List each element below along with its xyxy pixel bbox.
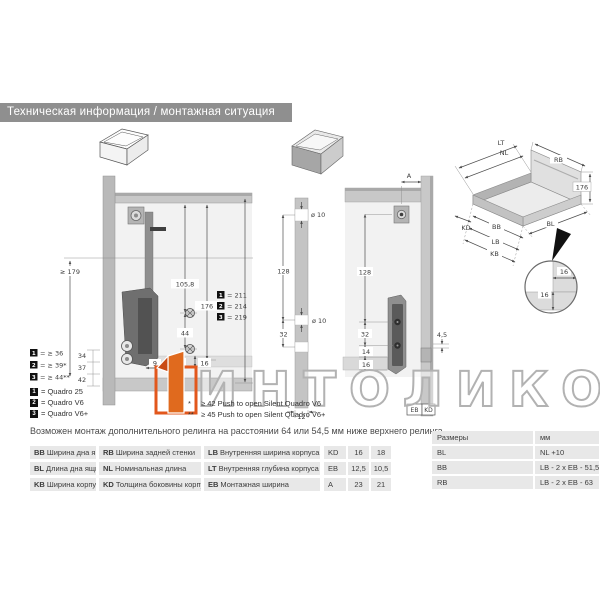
dim-bb-label: BB [492,223,501,231]
size-formula-table: Размеры мм BL NL +10 BB LB - 2 x EB - 51… [432,431,599,489]
glossary-text: Толщина боковины корпуса [116,480,201,489]
glossary-abbr: KB [34,480,45,489]
variant-badge: 3 [219,315,223,321]
drawer-open-icon [100,129,148,165]
mini-cell: 12,5 [348,462,369,475]
mini-cell: 16 [348,446,369,459]
dim-bl-label: BL [546,220,554,228]
variant-badge: 1 [219,293,223,299]
glossary-text: Монтажная ширина [220,480,289,489]
dim-rb-label: RB [554,156,563,164]
mini-cell: A [324,478,346,491]
variant-2-badge: 2 [30,399,38,407]
glossary-cell: LBВнутренняя ширина корпуса [204,446,320,459]
dim-32-panel-label: 32 [361,331,369,339]
variant-badge: 1 [32,351,36,357]
dim-lt-label: LT [498,139,505,147]
quadro-legend-label: = Quadro V6 [41,398,84,407]
glossary-abbr: BB [34,448,45,457]
footnote-text: ≥ 42 Push to open Silent Quadro V6 [201,399,321,408]
glossary-cell: BLДлина дна ящика [30,462,96,475]
glossary-text: Внутренняя глубина корпуса [219,464,319,473]
dim-128-strip-label: 128 [277,268,289,276]
variant-1-badge: 1 [30,388,38,396]
quadro-legend-item: 2 = Quadro V6 [30,397,88,408]
glossary-text: Ширина корпуса [47,480,96,489]
variant-value: = ≥ 44** [40,374,71,382]
variant-value: = 219 [227,314,247,322]
dim-dia10-mid-label: ø 10 [312,317,326,325]
variant-badge: 3 [32,375,36,381]
isometric-drawer [463,150,591,266]
glossary-text: Ширина дна ящика [47,448,96,457]
adjustment-pin [150,227,166,231]
glossary-abbr: BL [34,464,44,473]
variant-badge: 2 [219,304,223,310]
glossary-abbr: KD [103,480,114,489]
variant-value: = 214 [227,303,247,311]
footnote: * ≥ 42 Push to open Silent Quadro V6 [188,398,325,409]
glossary-cell: EBМонтажная ширина [204,478,320,491]
mini-cell: 10,5 [371,462,391,475]
dim-44-label: 44 [181,330,189,338]
right-isometric-drawing: LT NL RB 176 KD BB BL LB [445,120,595,350]
size-formula: NL +10 [535,446,599,459]
variant-value: = ≥ 36 [40,350,63,358]
quadro-legend-item: 1 = Quadro 25 [30,386,88,397]
dim-nl-label: NL [500,149,509,157]
glossary-cell: LTВнутренняя глубина корпуса [204,462,320,475]
dim-a-label: A [407,172,412,180]
front-variant-legend: 1 = ≥ 36 34 2 = ≥ 39* 37 3 = ≥ 44** 42 [30,349,86,384]
glossary-cell: KBШирина корпуса [30,478,96,491]
mini-cell: 21 [371,478,391,491]
variant-3-badge: 3 [30,410,38,418]
footnote-text: ≥ 45 Push to open Silent Quadro V6+ [201,410,325,419]
size-formula: LB - 2 x EB - 63 [535,476,599,489]
glossary-abbr: EB [208,480,218,489]
dim-179-label: ≥ 179 [60,268,80,276]
glossary-cell: RBШирина задней стенки [99,446,201,459]
size-abbr: RB [432,476,533,489]
glossary-abbr: LB [208,448,218,457]
dim-176-label: 176 [201,303,213,311]
glossary-cell: BBШирина дна ящика [30,446,96,459]
footnote-mark: ** [188,410,201,419]
quadro-legend: 1 = Quadro 25 2 = Quadro V6 3 = Quadro V… [30,386,88,419]
glossary-text: Длина дна ящика [46,464,96,473]
glossary-abbr: NL [103,464,113,473]
size-abbr: BB [432,461,533,474]
dim-176-label: 176 [576,184,588,192]
mini-cell: 23 [348,478,369,491]
drill-hole [295,315,308,325]
dim-lb-label: LB [491,238,499,246]
variant-value: = 211 [227,292,247,300]
dim-kb-label: KB [490,250,499,258]
dim-37-label: 37 [78,364,86,372]
drawer-front-icon [292,130,343,174]
drill-hole [295,342,308,352]
dim-42-label: 42 [78,376,86,384]
variant-value: = ≥ 39* [40,362,67,370]
footnote: ** ≥ 45 Push to open Silent Quadro V6+ [188,409,325,420]
size-header-name: Размеры [432,431,533,444]
dim-128-panel-label: 128 [359,269,371,277]
mini-cell: KD [324,446,346,459]
variant-badge: 2 [32,363,36,369]
size-abbr: BL [432,446,533,459]
drill-hole [295,209,308,221]
corner-detail: 16 16 [525,228,578,313]
catalog-page: Техническая информация / монтажная ситуа… [0,0,600,600]
mini-cell: 18 [371,446,391,459]
detail-dim-16-h: 16 [560,268,568,276]
glossary-abbr: RB [103,448,114,457]
size-header-unit: мм [535,431,599,444]
detail-dim-16-v: 16 [540,291,548,299]
quadro-legend-item: 3 = Quadro V6+ [30,408,88,419]
glossary-abbr: LT [208,464,217,473]
panel-bracket [421,348,431,362]
glossary-cell: NLНоминальная длина [99,462,201,475]
size-formula: LB - 2 x EB - 51,5 [535,461,599,474]
glossary-text: Ширина задней стенки [116,448,195,457]
detail-pointer-wedge [552,228,571,261]
dim-32-strip-label: 32 [279,331,287,339]
dim-dia10-top-label: ø 10 [311,211,325,219]
abbreviation-glossary: BBШирина дна ящика RBШирина задней стенк… [30,446,320,491]
dim-34-label: 34 [78,352,86,360]
dim-105-8-label: 105,8 [176,281,195,289]
footnote-mark: * [188,399,201,408]
quadro-legend-label: = Quadro 25 [41,387,83,396]
quadro-legend-label: = Quadro V6+ [41,409,88,418]
mini-cell: EB [324,462,346,475]
kd-eb-a-table: KD 16 18 EB 12,5 10,5 A 23 21 [324,446,391,491]
glossary-cell: KDТолщина боковины корпуса [99,478,201,491]
glossary-text: Номинальная длина [115,464,186,473]
height-variant-legend: 1 = 211 2 = 214 3 = 219 [217,291,247,322]
glossary-text: Внутренняя ширина корпуса [220,448,319,457]
page-title: Техническая информация / монтажная ситуа… [0,103,292,122]
dim-14-label: 14 [362,348,370,356]
footnotes: * ≥ 42 Push to open Silent Quadro V6 ** … [188,398,325,420]
